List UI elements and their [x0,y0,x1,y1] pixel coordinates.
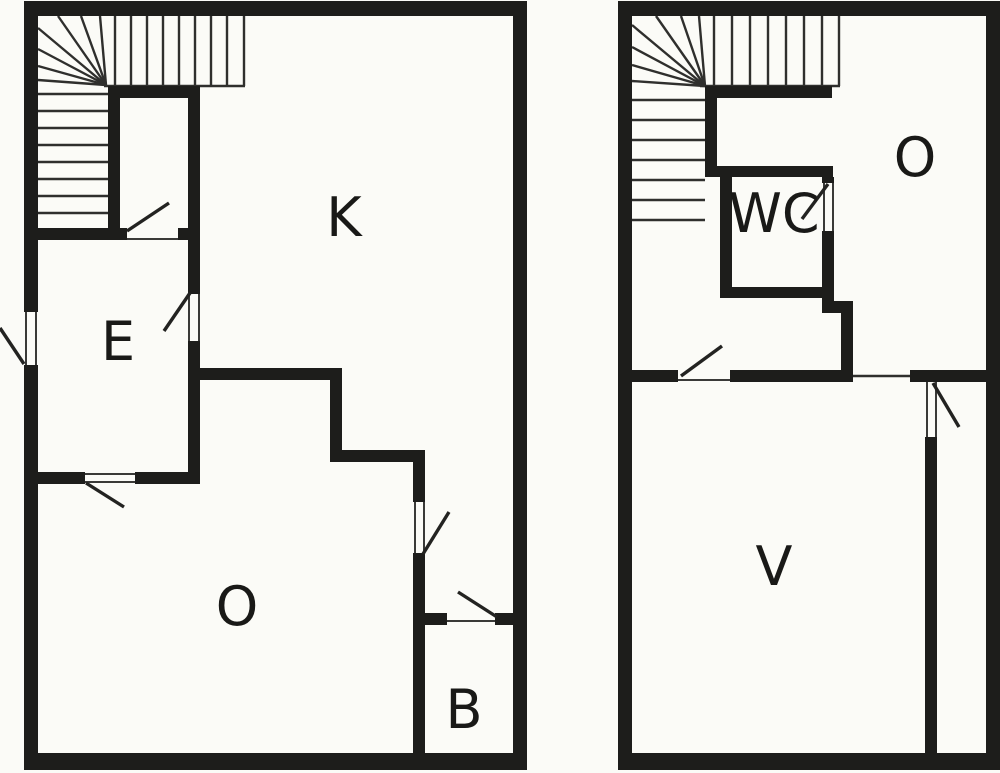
k-o-step-wall-a [197,368,342,380]
outer-wall-right [513,1,527,770]
stair-closet-top-wall [108,86,200,98]
staircase [38,16,245,213]
outer-wall-right [986,1,1000,770]
closet-door [127,203,178,242]
outer-wall-left [24,1,38,770]
door-swing [164,293,190,331]
room-label-e-left: E [101,315,135,369]
outer-wall-bottom [24,753,527,770]
closet-east-wall [188,86,200,484]
floor-plan-right [618,1,1000,770]
door-swing [0,328,24,364]
room-label-b-left: B [445,683,482,737]
wc-north-wall [705,166,833,177]
e-k-door [164,293,201,341]
room-label-o-right: O [894,131,937,185]
stair-landing-wall [705,86,832,98]
room-label-v-right: V [756,540,793,594]
closet-west-wall [108,86,120,240]
outer-wall-bottom [618,753,1000,770]
floor-plan-image: KEOBOWCV [0,0,1000,773]
e-o-door [85,471,135,507]
outer-wall-top [618,1,1000,16]
door-opening [447,612,495,626]
entry-door [0,312,39,365]
v-side-door [924,382,959,437]
o-b-dividing-wall [413,450,425,753]
outer-wall-top [24,1,527,16]
room-label-wc-right: WC [728,187,819,241]
main-dividing-wall-c [910,370,1000,382]
b-room-north-wall-a [413,613,447,625]
floor-plan-drawing [0,0,1000,773]
k-o-step-wall-b [330,368,342,462]
main-dividing-wall-b [730,370,853,382]
o-k-door [412,502,449,554]
door-swing [423,512,449,554]
step-wall-b [822,301,853,313]
step-wall-c [841,313,853,378]
main-dividing-wall-a [632,370,678,382]
stair-hall-wall [705,86,717,172]
b-room-north-wall-b [495,613,513,625]
floor-plan-left [0,1,527,770]
v-east-wall [925,382,937,753]
wc-south-wall [720,287,834,298]
hall-v-door [678,346,730,383]
k-b-door [447,592,497,626]
room-label-o-left: O [216,580,259,634]
k-o-step-wall-c [330,450,425,462]
outer-wall-left [618,1,632,770]
door-swing [86,483,124,507]
room-label-k-left: K [326,191,361,245]
